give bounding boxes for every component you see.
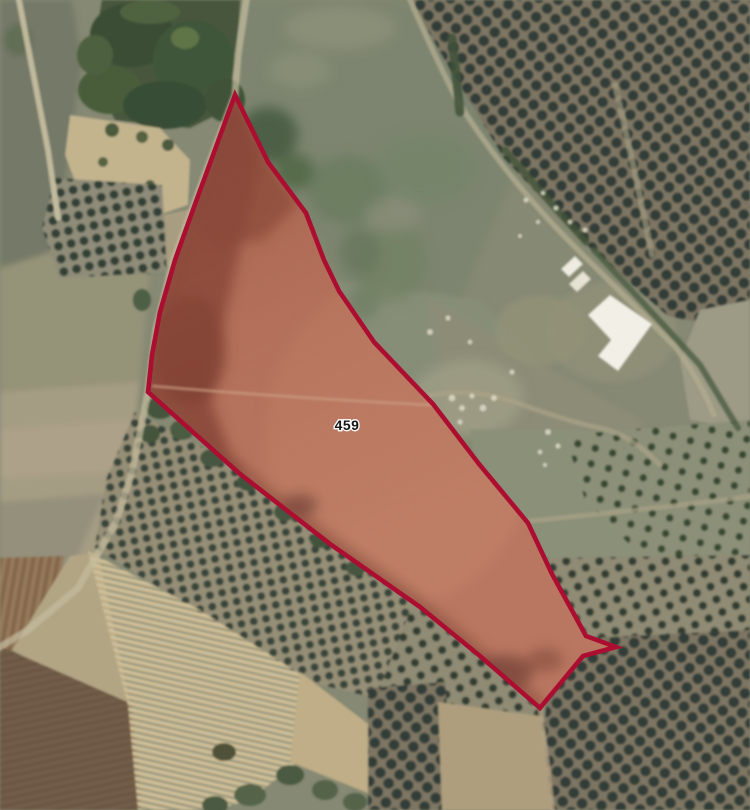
svg-text:459: 459 bbox=[335, 417, 360, 433]
